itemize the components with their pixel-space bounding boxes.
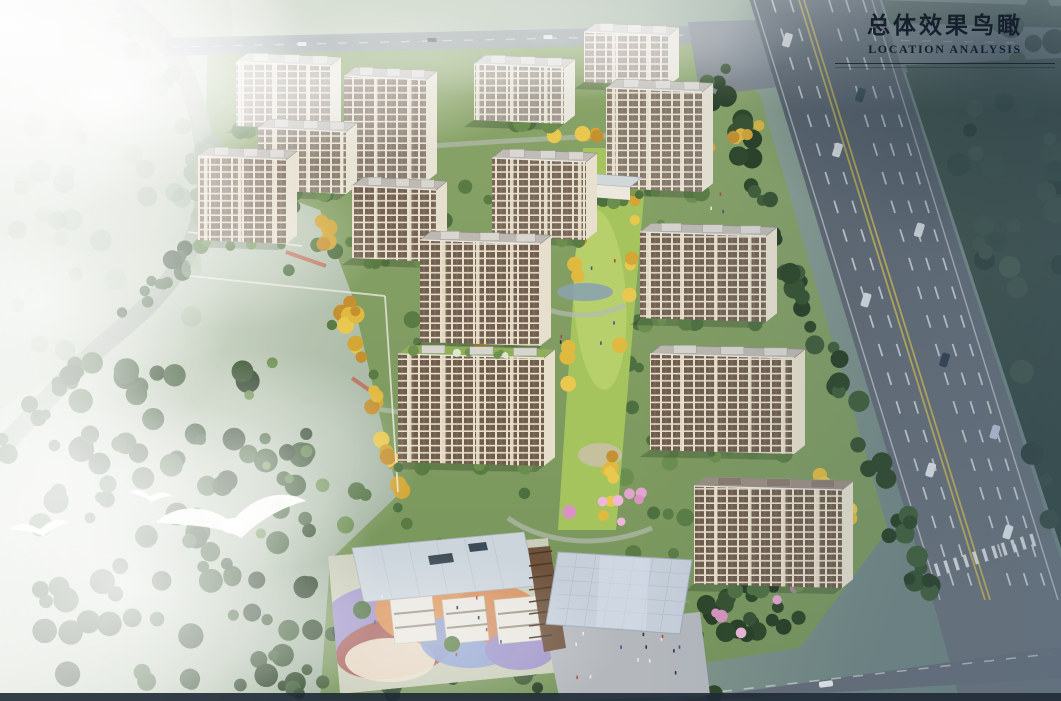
aerial-rendering: 总体效果鸟瞰 LOCATION ANALYSIS	[0, 0, 1061, 701]
pond	[557, 283, 613, 301]
scene-svg	[0, 0, 1061, 701]
title-block: 总体效果鸟瞰 LOCATION ANALYSIS	[835, 6, 1055, 68]
page-subtitle: LOCATION ANALYSIS	[835, 42, 1055, 57]
bottom-strip	[0, 693, 1061, 701]
title-underline	[835, 63, 1055, 64]
title-underline-2	[835, 67, 1055, 68]
page-title: 总体效果鸟瞰	[835, 6, 1055, 40]
building	[410, 231, 551, 356]
